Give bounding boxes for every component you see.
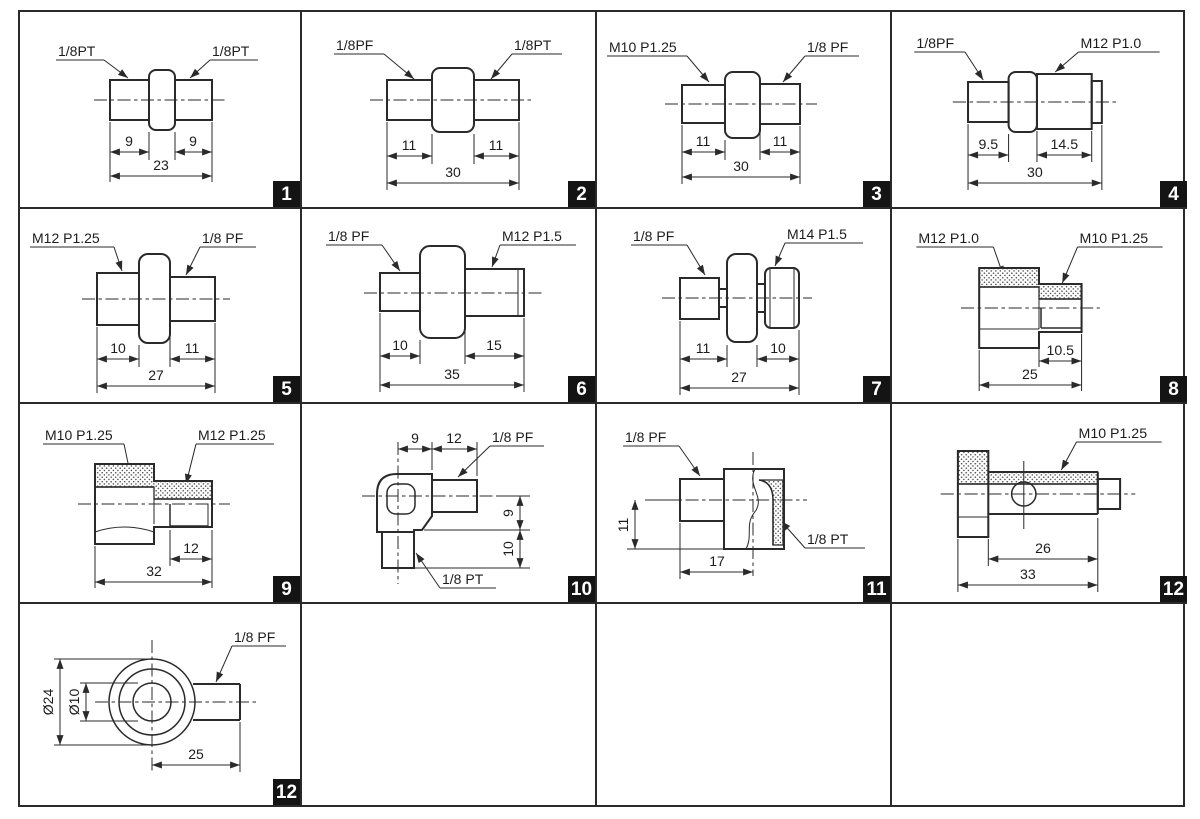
hex-nipple-drawing-5: M12 P1.25 1/8 PF 10 11: [20, 209, 300, 402]
leader-line: [775, 243, 785, 266]
dimensions: 11 17: [615, 500, 753, 579]
thread-label: 1/8PF: [916, 35, 954, 51]
thread-label: 1/8 PF: [633, 228, 674, 244]
hex-nipple-drawing-3: M10 P1.25 1/8 PF 11 11: [597, 12, 890, 207]
thread-label: 1/8PT: [514, 37, 552, 53]
dim-value: 11: [773, 133, 788, 149]
thread-label: M12 P1.25: [32, 230, 100, 246]
part-outline: [941, 451, 1136, 537]
drawing-cell-16-empty: [892, 604, 1187, 805]
drawing-sheet: 1/8PT 1/8PT 9 9 23: [18, 10, 1185, 807]
leader-line: [491, 54, 512, 79]
cell-badge: 12: [1160, 576, 1187, 602]
labels: 1/8 PF: [216, 629, 286, 682]
thread-label: 1/8 PF: [328, 228, 369, 244]
banjo-bolt-drawing-12: M10 P1.25 26: [892, 404, 1187, 602]
cell-badge: 3: [863, 181, 890, 207]
thread-label: M10 P1.25: [609, 39, 677, 55]
drawing-cell-12: M10 P1.25 26: [892, 404, 1187, 604]
dim-value: 10: [500, 541, 516, 557]
thread-label: M12 P1.25: [198, 427, 266, 443]
drawing-cell-7: 1/8 PF M14 P1.5 11: [597, 209, 892, 404]
thread-label: M10 P1.25: [45, 427, 113, 443]
leader-line: [186, 444, 196, 484]
dim-value: 27: [148, 367, 164, 383]
labels: M10 P1.25: [1061, 425, 1161, 470]
cell-badge: 5: [273, 376, 300, 402]
leader-line: [458, 446, 490, 477]
dim-value: 11: [185, 340, 200, 356]
dimensions: 11 10 27: [680, 321, 799, 395]
dim-value: 25: [1022, 366, 1038, 382]
part-outline: [662, 452, 807, 576]
leader-line: [687, 245, 705, 275]
drawing-cell-15-empty: [597, 604, 892, 805]
leader-line: [382, 245, 400, 271]
dim-value: 10.5: [1046, 342, 1074, 358]
dim-value: 9: [189, 133, 197, 149]
part-outline: [953, 72, 1117, 132]
part-outline: [364, 246, 542, 338]
dim-value: 10: [392, 337, 408, 353]
cell-badge: 9: [273, 576, 300, 602]
thread-label: 1/8PF: [336, 37, 373, 53]
labels: 1/8PT 1/8PT: [56, 43, 258, 78]
dim-value: 25: [188, 746, 204, 762]
leader-line: [1061, 442, 1076, 470]
cell-badge: 2: [568, 181, 595, 207]
cell-badge: 6: [568, 376, 595, 402]
cell-badge: 4: [1160, 181, 1187, 207]
leader-line: [104, 60, 128, 78]
part-outline: [78, 464, 230, 544]
leader-line: [1055, 52, 1078, 72]
part-outline: [82, 254, 230, 343]
thread-label: M12 P1.0: [918, 230, 979, 246]
leader-line: [1062, 247, 1077, 283]
dimensions: 26 33: [958, 518, 1098, 592]
dim-value: 10: [770, 340, 786, 356]
leader-line: [783, 56, 805, 82]
dim-value: 9.5: [978, 136, 998, 152]
thread-label: 1/8PT: [212, 43, 250, 59]
leader-line: [492, 245, 500, 267]
dim-value: 12: [183, 540, 199, 556]
thread-label: M10 P1.25: [1080, 230, 1149, 246]
thread-label: M12 P1.5: [502, 228, 562, 244]
thread-label: 1/8 PF: [492, 429, 533, 445]
labels: 1/8PF 1/8PT: [334, 37, 562, 79]
thread-label: 1/8 PF: [202, 230, 243, 246]
drawing-cell-2: 1/8PF 1/8PT 11 11 30: [302, 12, 597, 209]
labels: 1/8 PF M14 P1.5: [631, 226, 863, 275]
dim-value: 9: [500, 509, 516, 517]
dim-value: Ø10: [66, 689, 82, 716]
socket-drawing-11: 1/8 PF 1/8 PT 11: [597, 404, 890, 602]
dim-value: 27: [731, 369, 747, 385]
thread-label: M14 P1.5: [787, 226, 847, 242]
cell-badge: 8: [1160, 376, 1187, 402]
leader-line: [965, 52, 983, 80]
thread-label: 1/8 PT: [807, 531, 849, 547]
leader-line: [384, 54, 414, 79]
thread-label: 1/8 PT: [442, 571, 484, 587]
leader-line: [190, 60, 210, 78]
dim-value: 11: [696, 133, 711, 149]
dim-value: 30: [445, 164, 461, 180]
dim-value: 32: [146, 563, 162, 579]
drawing-cell-10: 9 12 1/8 PF 1/8 PT: [302, 404, 597, 604]
break-line: [746, 469, 758, 549]
leader-line: [687, 56, 709, 82]
thread-label: M10 P1.25: [1079, 425, 1148, 441]
drawing-cell-3: M10 P1.25 1/8 PF 11 11: [597, 12, 892, 209]
dim-value: 17: [709, 553, 725, 569]
cell-badge: 12: [273, 779, 300, 805]
labels: M10 P1.25 M12 P1.25: [43, 427, 274, 484]
cell-badge: 10: [568, 576, 595, 602]
dim-value: 10: [110, 340, 126, 356]
dim-value: 14.5: [1051, 136, 1079, 152]
cell-badge: 11: [863, 576, 890, 602]
labels: 1/8 PF 1/8 PT: [416, 429, 544, 588]
thread-label: M12 P1.0: [1081, 35, 1142, 51]
part-outline: [665, 72, 817, 138]
dimensions: 10 11 27: [97, 323, 215, 393]
drawing-cell-14-empty: [302, 604, 597, 805]
part-outline: [662, 254, 812, 342]
dimensions-top: 9 12: [398, 430, 477, 476]
banjo-ring-drawing-13: 1/8 PF Ø24 Ø10: [20, 604, 300, 805]
hatch-region: [958, 451, 1098, 484]
leader-line: [679, 446, 700, 476]
adapter-drawing-4: 1/8PF M12 P1.0 9.5 14.: [892, 12, 1187, 207]
elbow-drawing-10: 9 12 1/8 PF 1/8 PT: [302, 404, 595, 602]
leader-line: [186, 247, 200, 275]
labels: 1/8 PF M12 P1.5: [326, 228, 576, 271]
drawing-cell-8: M12 P1.0 M10 P1.25: [892, 209, 1187, 404]
cell-badge: 7: [863, 376, 890, 402]
part-outline: [961, 268, 1100, 348]
dim-value: 26: [1035, 540, 1051, 556]
labels: 1/8 PF 1/8 PT: [623, 429, 865, 548]
dim-value: 9: [411, 430, 419, 446]
adapter-drawing-8: M12 P1.0 M10 P1.25: [892, 209, 1187, 402]
labels: M10 P1.25 1/8 PF: [607, 39, 859, 82]
dim-value: 11: [696, 340, 711, 356]
drawing-cell-5: M12 P1.25 1/8 PF 10 11: [20, 209, 302, 404]
drawing-cell-4: 1/8PF M12 P1.0 9.5 14.: [892, 12, 1187, 209]
hex-nipple-drawing-2: 1/8PF 1/8PT 11 11 30: [302, 12, 595, 207]
thread-label: 1/8 PF: [234, 629, 275, 645]
leader-line: [416, 553, 440, 588]
thread-label: 1/8 PF: [807, 39, 848, 55]
dim-value: 30: [1027, 164, 1043, 180]
dim-value: 33: [1020, 566, 1036, 582]
dimensions: 10 15 35: [380, 313, 524, 392]
drawing-cell-11: 1/8 PF 1/8 PT 11: [597, 404, 892, 604]
part-outline: [370, 68, 534, 132]
dim-value: 23: [153, 157, 169, 173]
dim-value: Ø24: [40, 689, 56, 716]
dimensions: Ø24 Ø10 25: [40, 659, 240, 772]
thread-label: 1/8PT: [58, 43, 96, 59]
dimensions: 10.5 25: [979, 334, 1081, 391]
dim-value: 11: [615, 518, 631, 533]
thread-label: 1/8 PF: [625, 429, 666, 445]
dimensions: 9.5 14.5 30: [968, 124, 1102, 190]
part-outline: [94, 70, 228, 130]
cell-badge: 1: [273, 181, 300, 207]
hex-nipple-drawing-6: 1/8 PF M12 P1.5 10 15: [302, 209, 595, 402]
hex-nipple-drawing-7: 1/8 PF M14 P1.5 11: [597, 209, 890, 402]
leader-line: [114, 247, 122, 271]
drawing-cell-1: 1/8PT 1/8PT 9 9 23: [20, 12, 302, 209]
dim-value: 9: [125, 133, 133, 149]
dim-value: 15: [486, 337, 502, 353]
dim-value: 35: [444, 366, 460, 382]
dimensions: 11 11 30: [682, 125, 800, 184]
dim-value: 30: [733, 158, 749, 174]
leader-line: [216, 646, 232, 682]
dim-value: 11: [402, 137, 417, 153]
dim-value: 12: [446, 430, 462, 446]
part-outline: [95, 640, 258, 772]
drawing-cell-6: 1/8 PF M12 P1.5 10 15: [302, 209, 597, 404]
drawing-cell-9: M10 P1.25 M12 P1.25: [20, 404, 302, 604]
dim-value: 11: [489, 137, 504, 153]
hex-nipple-drawing-1: 1/8PT 1/8PT 9 9 23: [20, 12, 300, 207]
labels: M12 P1.25 1/8 PF: [30, 230, 256, 275]
adapter-drawing-9: M10 P1.25 M12 P1.25: [20, 404, 300, 602]
drawing-cell-13: 1/8 PF Ø24 Ø10: [20, 604, 302, 805]
